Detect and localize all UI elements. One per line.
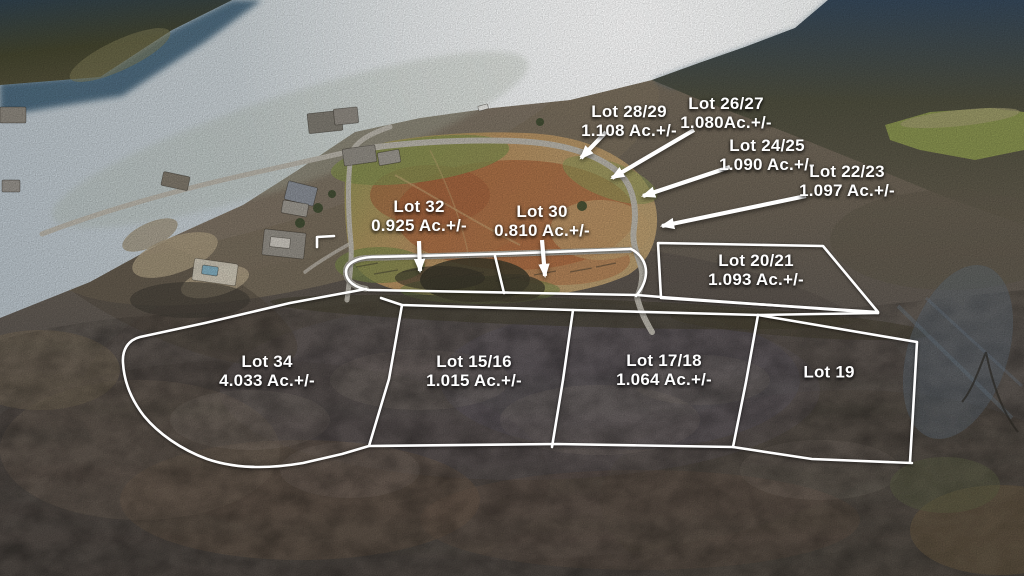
- lot-boundary-lots-south-bottom: [369, 444, 912, 463]
- lot-boundary-lot-34-outline: [123, 289, 402, 467]
- lot-arrow-lot-32: [419, 241, 420, 271]
- lot-boundary-divider-lot32-lot30: [495, 256, 504, 293]
- lot-boundary-overlay: [0, 0, 1024, 576]
- lot-boundary-lots-32-30-top: [346, 249, 631, 290]
- lot-arrow-lot-22-23: [662, 196, 806, 226]
- lot-boundary-lots-strip-bottom: [369, 290, 878, 313]
- lot-boundary-lines: [123, 236, 917, 467]
- lot-arrow-lot-26-27: [612, 130, 694, 178]
- lot-arrow-lot-30: [542, 240, 545, 276]
- lot-boundary-divider-lot1718-lot19: [733, 315, 758, 447]
- lot-boundary-lot-20-21-outline: [658, 243, 878, 312]
- lot-arrow-lot-24-25: [643, 167, 730, 196]
- lot-boundary-lot-19-northeast-edge: [758, 315, 917, 462]
- lot-boundary-divider-lot1516-lot1718: [552, 310, 573, 447]
- lot-arrow-lot-28-29: [581, 132, 606, 158]
- lot-boundary-boundary-mark-west: [317, 236, 334, 247]
- aerial-lot-map: Lot 28/291.108 Ac.+/-Lot 26/271.080Ac.+/…: [0, 0, 1024, 576]
- lot-boundary-lots-32-30-right-cap: [631, 249, 646, 296]
